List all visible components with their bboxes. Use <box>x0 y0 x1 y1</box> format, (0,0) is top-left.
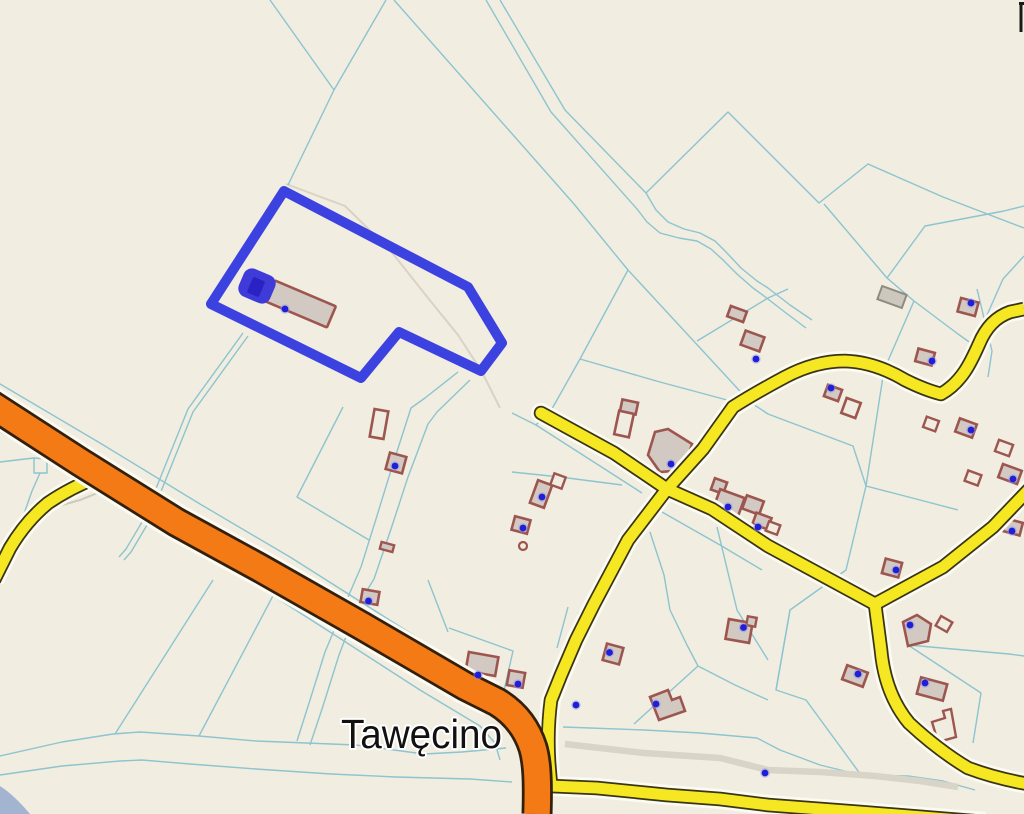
svg-text:Tawęcino: Tawęcino <box>341 711 502 757</box>
